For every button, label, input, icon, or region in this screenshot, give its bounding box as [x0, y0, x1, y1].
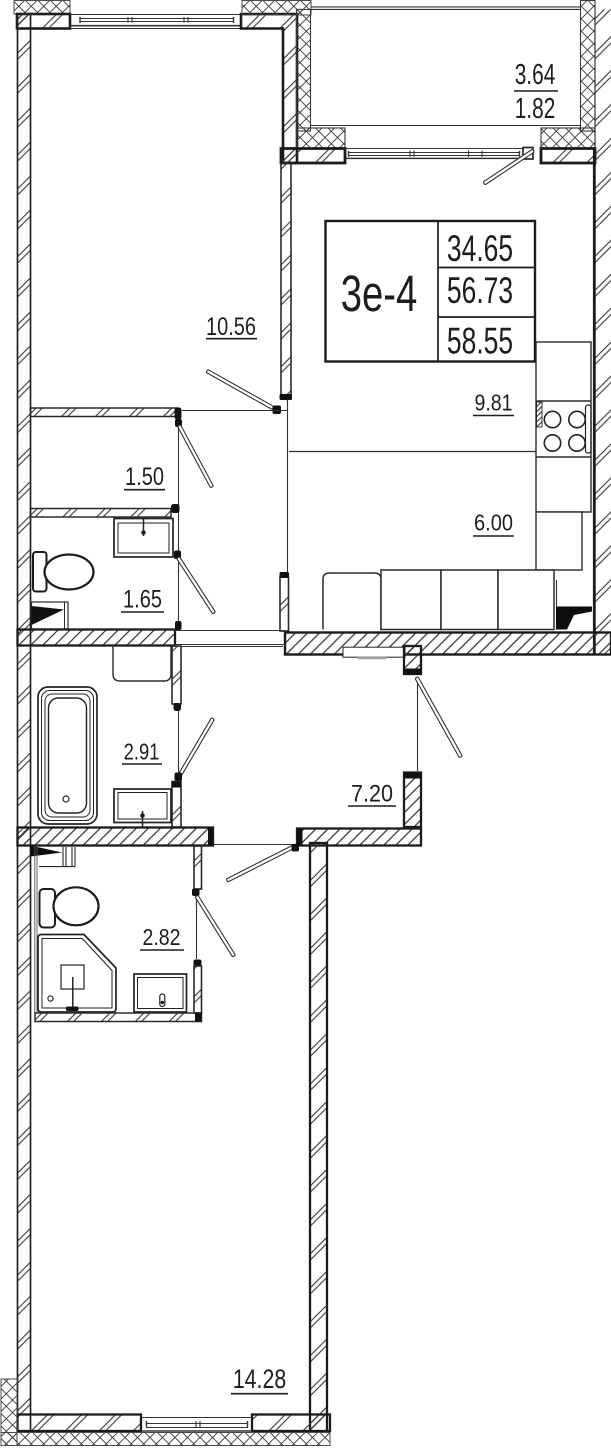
- svg-text:3e-4: 3e-4: [341, 265, 418, 323]
- svg-text:14.28: 14.28: [233, 1365, 286, 1395]
- svg-text:10.56: 10.56: [206, 313, 256, 341]
- svg-text:1.65: 1.65: [123, 585, 162, 613]
- svg-text:2.91: 2.91: [124, 740, 160, 765]
- svg-text:34.65: 34.65: [447, 227, 513, 269]
- svg-text:56.73: 56.73: [447, 269, 513, 311]
- svg-text:6.00: 6.00: [474, 509, 513, 536]
- svg-text:7.20: 7.20: [351, 779, 393, 806]
- svg-text:2.82: 2.82: [142, 925, 180, 951]
- svg-text:1.82: 1.82: [515, 93, 556, 125]
- svg-text:9.81: 9.81: [474, 390, 512, 416]
- svg-text:58.55: 58.55: [447, 320, 513, 362]
- svg-text:1.50: 1.50: [125, 463, 164, 491]
- svg-text:3.64: 3.64: [515, 59, 556, 91]
